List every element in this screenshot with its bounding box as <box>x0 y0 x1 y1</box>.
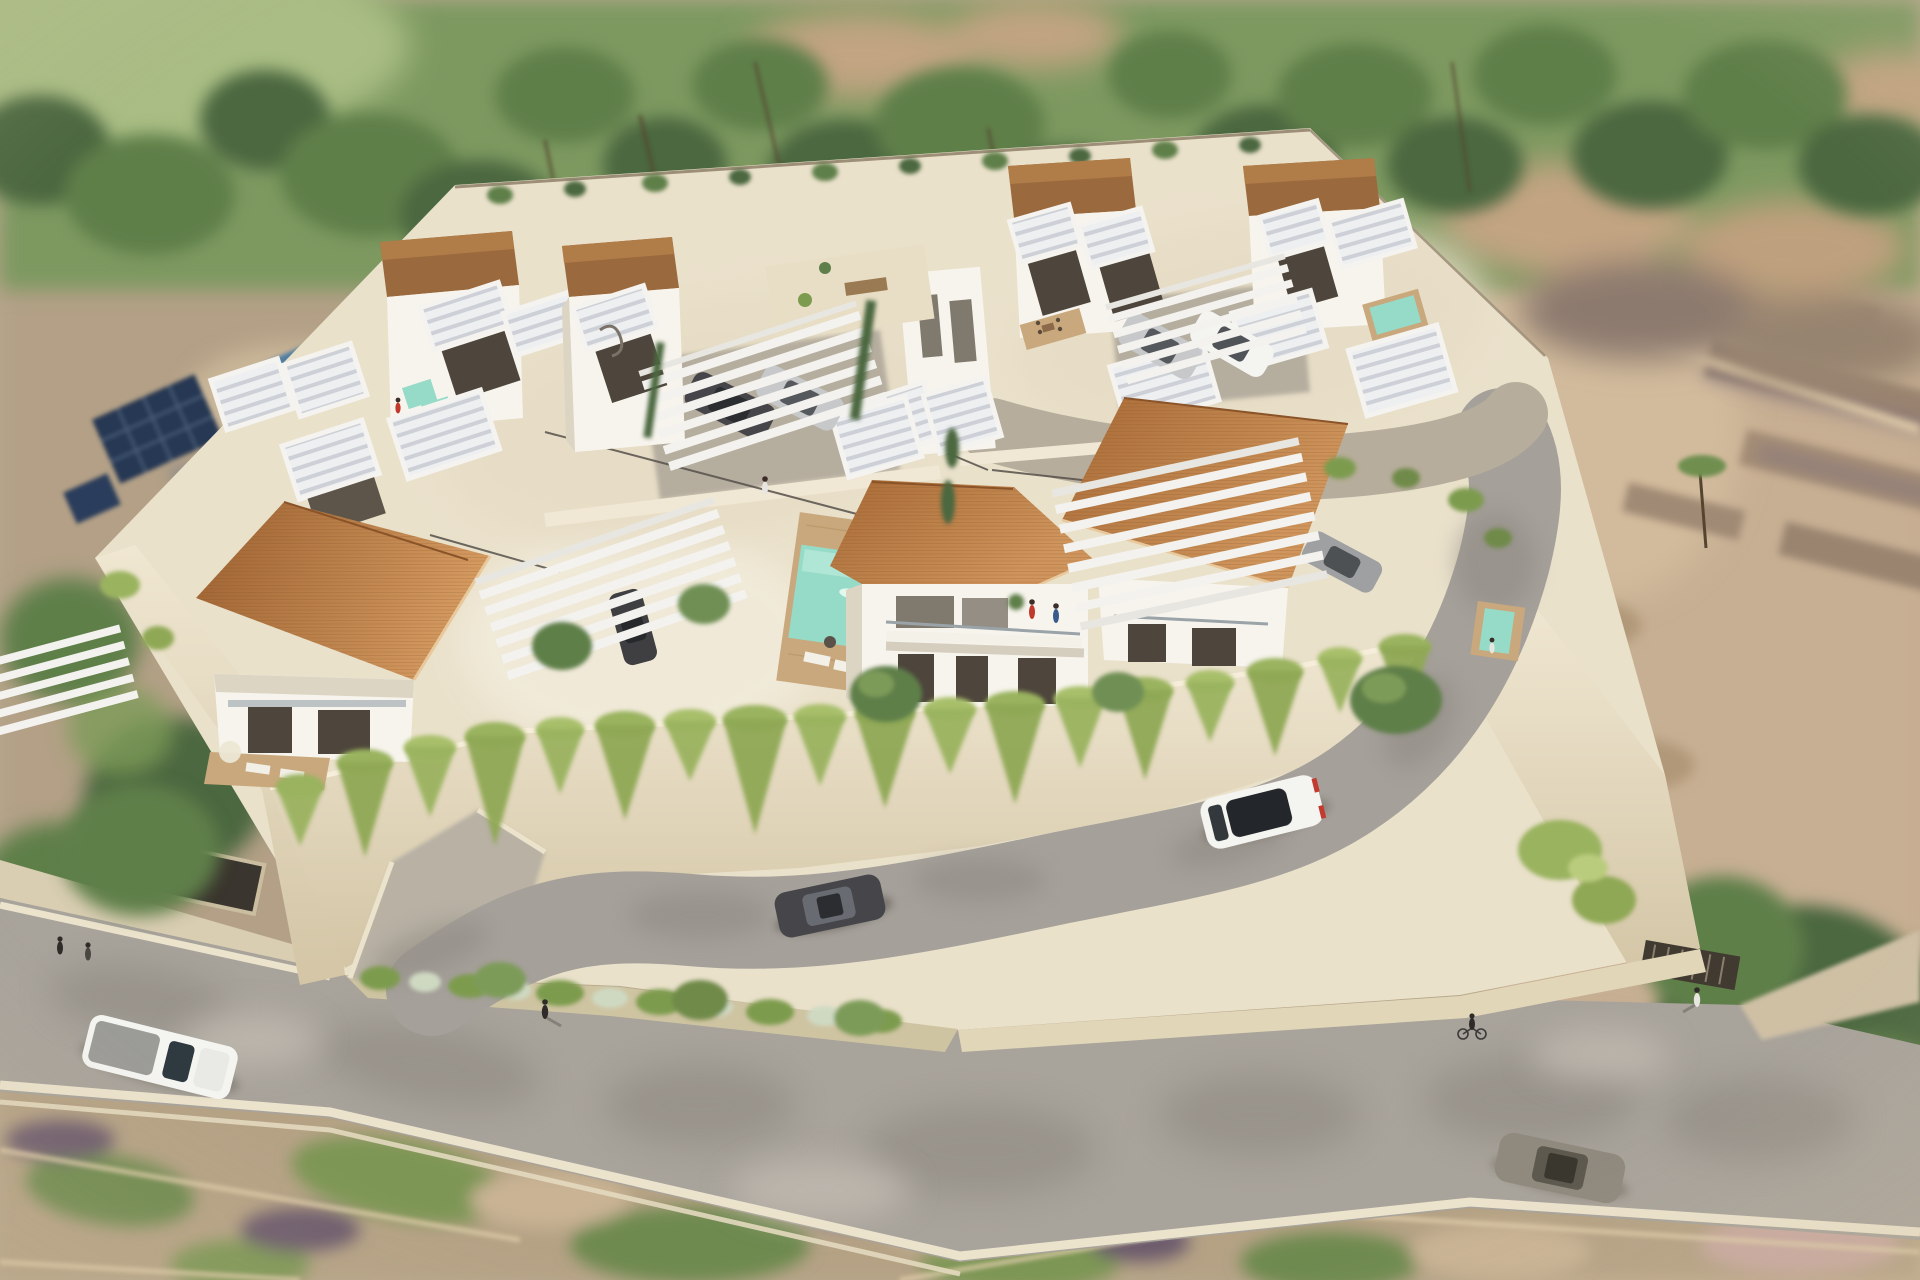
architectural-render <box>0 0 1920 1280</box>
render-viewport <box>0 0 1920 1280</box>
depth-of-field-vignette <box>0 0 1920 1280</box>
